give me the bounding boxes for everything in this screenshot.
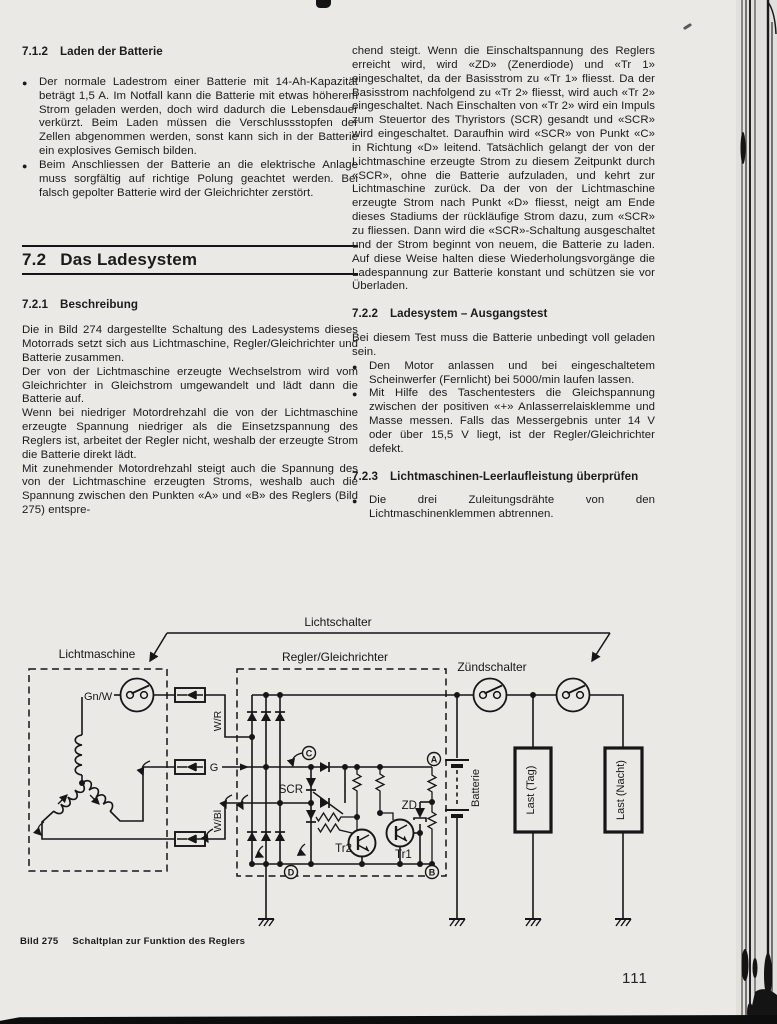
flow-arrows (241, 753, 305, 857)
heading-number: 7.2 (22, 250, 46, 269)
output-test-list: Den Motor anlassen und bei eingeschaltet… (352, 360, 655, 457)
scan-bottom-edge (0, 1015, 777, 1024)
scan-artifact-blob (316, 0, 331, 8)
circuit-diagram: Lichtschalter Lichtmaschine Gn/W (8, 598, 750, 938)
regulator-rectifier-group: Regler/Gleichrichter SCR (237, 650, 473, 926)
rule-top (22, 245, 358, 247)
description-paragraphs: Die in Bild 274 dargestellte Schaltung d… (22, 324, 358, 518)
diode-icon (320, 798, 329, 808)
diode-icon (320, 762, 329, 772)
gnw-label: Gn/W (84, 691, 113, 703)
paragraph: Wenn bei niedriger Motordrehzahl die von… (22, 407, 358, 462)
tr1-label: Tr1 (395, 849, 412, 861)
heading-title: Laden der Batterie (60, 45, 163, 58)
ground-icon (525, 919, 541, 926)
heading-title: Ladesystem – Ausgangstest (390, 307, 547, 320)
stator-windings (42, 697, 175, 839)
idle-power-list: Die drei Zuleitungsdrähte von den Lichtm… (352, 494, 655, 522)
transistor-tr1-icon (387, 820, 414, 847)
connector-icon (175, 832, 205, 846)
heading-number: 7.2.3 (352, 470, 378, 483)
paragraph: Der von der Lichtmaschine erzeugte Wechs… (22, 366, 358, 408)
node-a: A (431, 755, 438, 765)
list-item: Der normale Ladestrom einer Batterie mit… (22, 76, 358, 159)
heading-7-2-2: 7.2.2Ladesystem – Ausgangstest (352, 307, 655, 321)
heading-7-2-3: 7.2.3Lichtmaschinen-Leerlaufleistung übe… (352, 470, 655, 484)
lichtmaschine-label: Lichtmaschine (59, 647, 136, 661)
figure-title: Schaltplan zur Funktion des Reglers (72, 936, 245, 947)
page-number: 111 (622, 970, 648, 987)
node-d: D (288, 868, 295, 878)
node-c: C (306, 749, 313, 759)
batterie-label: Batterie (470, 769, 482, 807)
wr-label: W/R (212, 710, 224, 731)
heading-title: Das Ladesystem (60, 250, 197, 269)
figure-caption: Bild 275Schaltplan zur Funktion des Regl… (20, 936, 245, 947)
continuation-paragraph: chend steigt. Wenn die Einschaltspannung… (352, 45, 655, 294)
paragraph: Mit zunehmender Motordrehzahl steigt auc… (22, 463, 358, 518)
paragraph: Die in Bild 274 dargestellte Schaltung d… (22, 324, 358, 366)
transistor-tr2-icon (349, 830, 376, 857)
heading-title: Beschreibung (60, 298, 138, 311)
light-switch-pole1-icon (121, 679, 154, 712)
heading-number: 7.2.2 (352, 307, 378, 320)
rule-bottom (22, 273, 358, 275)
last-tag-label: Last (Tag) (525, 766, 537, 815)
star-point-dot (79, 780, 85, 786)
wbl-label: W/Bl (212, 810, 224, 832)
heading-title: Lichtmaschinen-Leerlaufleistung überprüf… (390, 470, 638, 483)
lichtschalter-label: Lichtschalter (304, 615, 371, 629)
light-switch-pole2-icon (557, 679, 590, 712)
ground-icon (258, 919, 274, 926)
right-column: chend steigt. Wenn die Einschaltspannung… (352, 45, 655, 522)
current-arrow-curved (225, 795, 232, 808)
winding-current-arrows (38, 795, 99, 835)
scr-label: SCR (279, 784, 303, 796)
list-item: Beim Anschliessen der Batterie an die el… (22, 159, 358, 201)
ignition-switch-icon (474, 679, 507, 712)
heading-number: 7.2.1 (22, 298, 48, 311)
ground-icon (449, 919, 465, 926)
list-item: Mit Hilfe des Taschentesters die Gleichs… (352, 387, 655, 456)
battery-charging-list: Der normale Ladestrom einer Batterie mit… (22, 76, 358, 201)
battery-group: Batterie (445, 695, 482, 926)
heading-7-1-2: 7.1.2Laden der Batterie (22, 45, 358, 59)
regler-label: Regler/Gleichrichter (282, 650, 388, 664)
ground-icon (615, 919, 631, 926)
scan-artifact-speck (683, 23, 692, 30)
load-night-group: Last (Nacht) (605, 748, 642, 926)
list-item: Die drei Zuleitungsdrähte von den Lichtm… (352, 494, 655, 522)
book-binding-edge (733, 0, 777, 1024)
test-intro-paragraph: Bei diesem Test muss die Batterie unbedi… (352, 332, 655, 360)
section-7-2-heading-block: 7.2Das Ladesystem (22, 245, 358, 275)
zd-label: ZD (402, 800, 417, 812)
figure-number: Bild 275 (20, 936, 58, 947)
connector-icon (175, 760, 205, 774)
node-b: B (429, 868, 436, 878)
left-column: 7.1.2Laden der Batterie Der normale Lade… (22, 45, 358, 518)
list-item: Den Motor anlassen und bei eingeschaltet… (352, 360, 655, 388)
current-arrow (240, 764, 249, 771)
alternator-group: Lichtmaschine Gn/W (29, 647, 175, 871)
tr2-label: Tr2 (335, 843, 352, 855)
last-nacht-label: Last (Nacht) (615, 760, 627, 820)
heading-7-2-1: 7.2.1Beschreibung (22, 298, 358, 312)
scanned-manual-page: 7.1.2Laden der Batterie Der normale Lade… (0, 0, 777, 1024)
load-day-group: Last (Tag) (515, 748, 551, 926)
junction-dot (530, 692, 536, 698)
g-label: G (210, 762, 219, 774)
zuendschalter-label: Zündschalter (457, 660, 526, 674)
resistor-network (316, 767, 436, 864)
heading-number: 7.1.2 (22, 45, 48, 58)
connector-icon (175, 688, 205, 702)
heading-7-2: 7.2Das Ladesystem (22, 253, 358, 267)
